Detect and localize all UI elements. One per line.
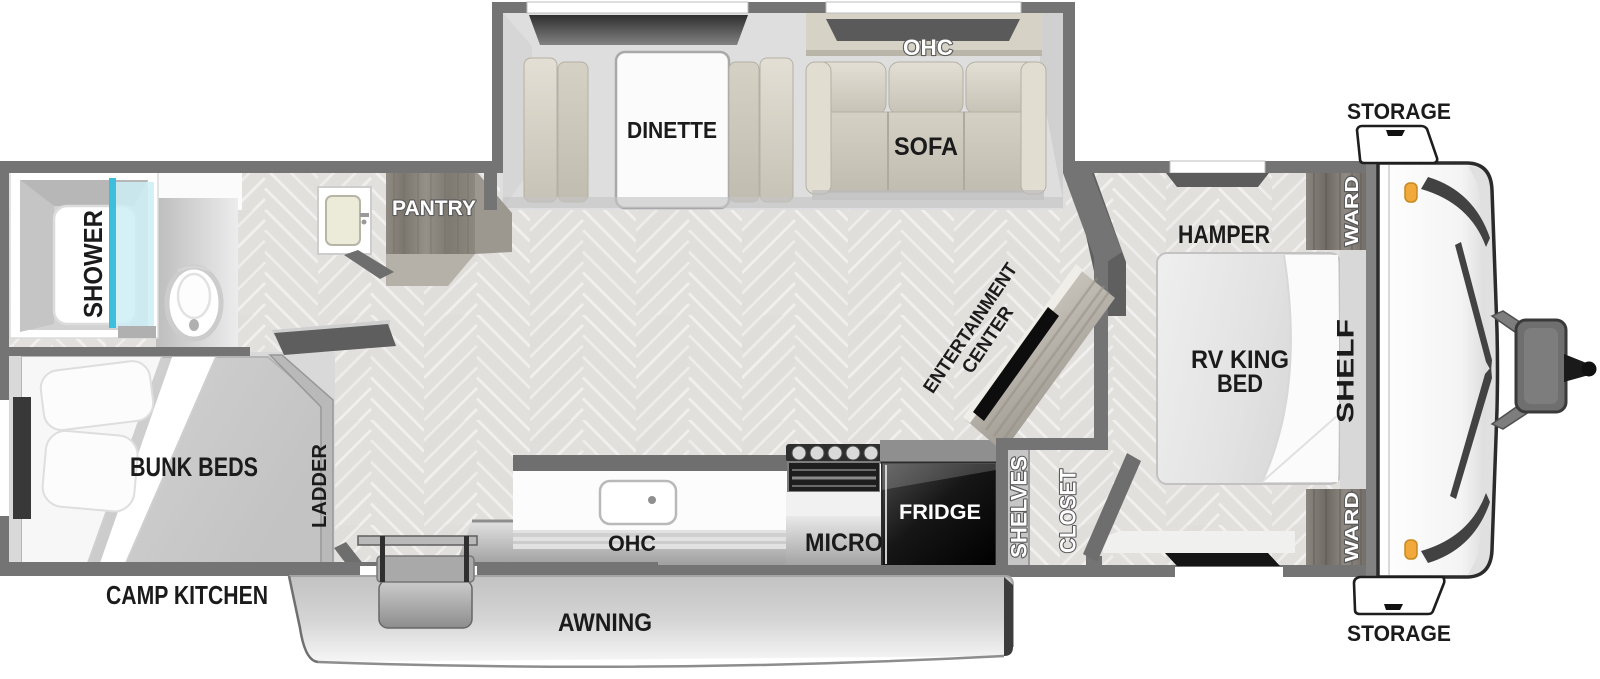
svg-text:SHELVES: SHELVES (1007, 456, 1032, 558)
svg-text:OHC: OHC (608, 531, 656, 556)
svg-text:LADDER: LADDER (309, 443, 331, 528)
svg-text:SOFA: SOFA (894, 133, 958, 161)
svg-text:STORAGE: STORAGE (1347, 99, 1451, 124)
svg-text:CAMP KITCHEN: CAMP KITCHEN (106, 580, 268, 610)
svg-text:STORAGE: STORAGE (1347, 621, 1451, 646)
svg-text:PANTRY: PANTRY (392, 197, 476, 220)
svg-text:OHC: OHC (903, 35, 953, 60)
svg-text:HAMPER: HAMPER (1178, 221, 1270, 249)
svg-text:CLOSET: CLOSET (1056, 468, 1081, 553)
svg-text:BUNK BEDS: BUNK BEDS (130, 452, 258, 482)
svg-text:AWNING: AWNING (558, 609, 652, 637)
svg-text:SHOWER: SHOWER (78, 210, 108, 318)
svg-text:WARD: WARD (1342, 492, 1362, 562)
svg-text:DINETTE: DINETTE (627, 117, 717, 143)
svg-text:MICRO: MICRO (805, 529, 883, 557)
svg-text:FRIDGE: FRIDGE (899, 501, 981, 524)
svg-text:BED: BED (1217, 370, 1263, 398)
svg-text:SHELF: SHELF (1333, 319, 1360, 423)
svg-text:WARD: WARD (1342, 176, 1362, 246)
